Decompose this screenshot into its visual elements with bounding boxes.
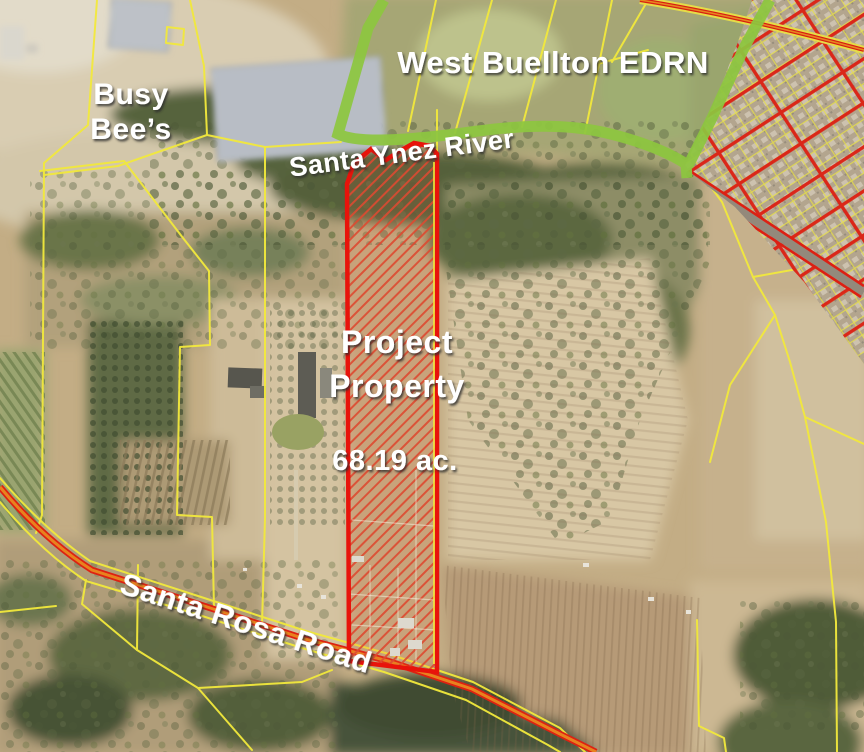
label-project-property-line2: Property xyxy=(329,368,465,404)
aerial-map: West Buellton EDRN Busy Bee’s Santa Ynez… xyxy=(0,0,864,752)
project-hatch xyxy=(347,143,437,672)
label-busy-bees-line2: Bee’s xyxy=(90,113,171,146)
label-west-buellton-edrn: West Buellton EDRN xyxy=(397,45,709,80)
label-busy-bees-line1: Busy xyxy=(93,78,168,111)
label-project-property-line1: Project xyxy=(341,324,453,360)
map-viewport: West Buellton EDRN Busy Bee’s Santa Ynez… xyxy=(0,0,864,752)
project-property-polygon xyxy=(347,143,437,672)
label-project-acreage: 68.19 ac. xyxy=(332,445,457,477)
